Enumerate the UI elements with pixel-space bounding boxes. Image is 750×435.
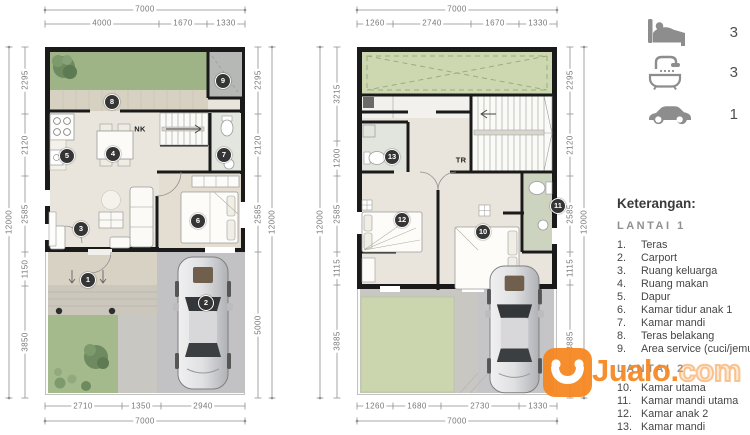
dim-label: 1330: [526, 19, 549, 28]
car-plan1: [173, 257, 233, 389]
dim-label: 1670: [483, 19, 506, 28]
legend-item: 13.Kamar mandi: [617, 421, 750, 434]
legend-item-label: Kamar mandi: [641, 317, 750, 330]
dim-label: 2120: [566, 133, 575, 156]
jualo-suffix-text: com: [679, 353, 741, 388]
legend-item: 8.Teras belakang: [617, 330, 750, 343]
dim-label: 2120: [254, 133, 263, 156]
dim-label: 2940: [191, 402, 214, 411]
legend-item: 4.Ruang makan: [617, 278, 750, 291]
dim-label: 7000: [133, 417, 156, 426]
room-badge: 3: [73, 221, 89, 237]
room-badge: 5: [59, 148, 75, 164]
room-badge: 7: [216, 147, 232, 163]
legend-item: 2.Carport: [617, 252, 750, 265]
legend-item-number: 7.: [617, 317, 641, 330]
plan2-graphic: [356, 48, 558, 395]
dim-label: 7000: [445, 5, 468, 14]
car-icon: [646, 103, 692, 125]
room-badge: 11: [550, 198, 566, 214]
dim-label: 3215: [333, 82, 342, 105]
legend-item: 7.Kamar mandi: [617, 317, 750, 330]
car-plan2: [485, 266, 544, 393]
legend-item-number: 3.: [617, 265, 641, 278]
room-badge: 10: [475, 224, 491, 240]
bed-icon: [646, 16, 688, 48]
dim-label: 2295: [566, 68, 575, 91]
dim-label: 1350: [129, 402, 152, 411]
dim-label: 4000: [90, 19, 113, 28]
dim-label: 7000: [445, 417, 468, 426]
dim-label: 2740: [420, 19, 443, 28]
bathtub-icon: [646, 53, 684, 91]
dim-label: 1330: [526, 402, 549, 411]
dim-label: 1200: [333, 146, 342, 169]
legend-item-number: 8.: [617, 330, 641, 343]
legend-item-number: 4.: [617, 278, 641, 291]
bedroom-count: 3: [730, 24, 738, 41]
room-badge: 9: [215, 73, 231, 89]
stair-label-tr: TR: [456, 156, 467, 165]
dim-label: 1260: [363, 19, 386, 28]
dim-label: 2120: [21, 133, 30, 156]
legend-item-label: Carport: [641, 252, 750, 265]
legend-item-number: 6.: [617, 304, 641, 317]
dim-label: 1150: [21, 258, 30, 281]
legend-heading-lantai-1: LANTAI 1: [617, 220, 750, 232]
jualo-dot: .: [670, 353, 678, 388]
legend-item-label: Ruang makan: [641, 278, 750, 291]
dim-label: 12000: [580, 208, 589, 236]
bathroom-count: 3: [730, 64, 738, 81]
room-badge: 1: [80, 272, 96, 288]
dim-label: 2585: [333, 202, 342, 225]
legend-item-label: Kamar mandi utama: [641, 395, 750, 408]
dim-label: 1115: [566, 257, 575, 279]
dim-label: 1115: [333, 257, 342, 279]
legend-item: 6.Kamar tidur anak 1: [617, 304, 750, 317]
legend-item-label: Teras: [641, 239, 750, 252]
plan1-graphic: [44, 48, 246, 395]
legend: Keterangan: LANTAI 1 1.Teras 2.Carport 3…: [617, 196, 750, 434]
dim-label: 12000: [316, 208, 325, 236]
room-badge: 2: [198, 295, 214, 311]
legend-item-number: 11.: [617, 395, 641, 408]
legend-item-label: Dapur: [641, 291, 750, 304]
room-badge: 8: [104, 94, 120, 110]
dim-label: 2585: [254, 202, 263, 225]
carport-count: 1: [730, 106, 738, 123]
legend-item-number: 12.: [617, 408, 641, 421]
dim-label: 1330: [214, 19, 237, 28]
dim-label: 2585: [566, 202, 575, 225]
dim-label: 2730: [468, 402, 491, 411]
room-badge: 6: [190, 213, 206, 229]
legend-item-label: Teras belakang: [641, 330, 750, 343]
floor-plan-listing-image: 7000 4000 1670 1330 2710 1350 2940 7000 …: [0, 0, 750, 435]
room-badge: 4: [105, 146, 121, 162]
dim-label: 3850: [21, 330, 30, 353]
dim-label: 2295: [21, 68, 30, 91]
legend-item: 12.Kamar anak 2: [617, 408, 750, 421]
dim-label: 12000: [5, 208, 14, 236]
bedroom-summary: 3: [646, 12, 738, 52]
dim-label: 1670: [171, 19, 194, 28]
legend-item: 11.Kamar mandi utama: [617, 395, 750, 408]
jualo-watermark: Jualo.com: [592, 352, 741, 390]
legend-title: Keterangan:: [617, 196, 750, 211]
bathroom-summary: 3: [646, 52, 738, 92]
legend-item: 5.Dapur: [617, 291, 750, 304]
legend-item-number: 5.: [617, 291, 641, 304]
dim-label: 1260: [363, 402, 386, 411]
dim-label: 7000: [133, 5, 156, 14]
legend-item-number: 2.: [617, 252, 641, 265]
legend-item-number: 13.: [617, 421, 641, 434]
dim-label: 5000: [254, 313, 263, 336]
jualo-brand-text: Jualo: [592, 353, 670, 388]
legend-item-label: Kamar anak 2: [641, 408, 750, 421]
room-badge: 13: [384, 149, 400, 165]
dim-label: 2710: [71, 402, 94, 411]
room-badge: 12: [394, 212, 410, 228]
legend-item-label: Ruang keluarga: [641, 265, 750, 278]
dim-label: 2585: [21, 202, 30, 225]
legend-item-label: Kamar mandi: [641, 421, 750, 434]
legend-item-number: 1.: [617, 239, 641, 252]
legend-item: 3.Ruang keluarga: [617, 265, 750, 278]
carport-summary: 1: [646, 94, 738, 134]
dim-label: 12000: [268, 208, 277, 236]
stair-label-nk: NK: [134, 125, 145, 134]
dim-label: 3885: [333, 329, 342, 352]
legend-item-label: Kamar tidur anak 1: [641, 304, 750, 317]
dim-label: 1680: [405, 402, 428, 411]
dim-label: 2295: [254, 68, 263, 91]
legend-item: 1.Teras: [617, 239, 750, 252]
jualo-logo-icon: [543, 348, 592, 397]
